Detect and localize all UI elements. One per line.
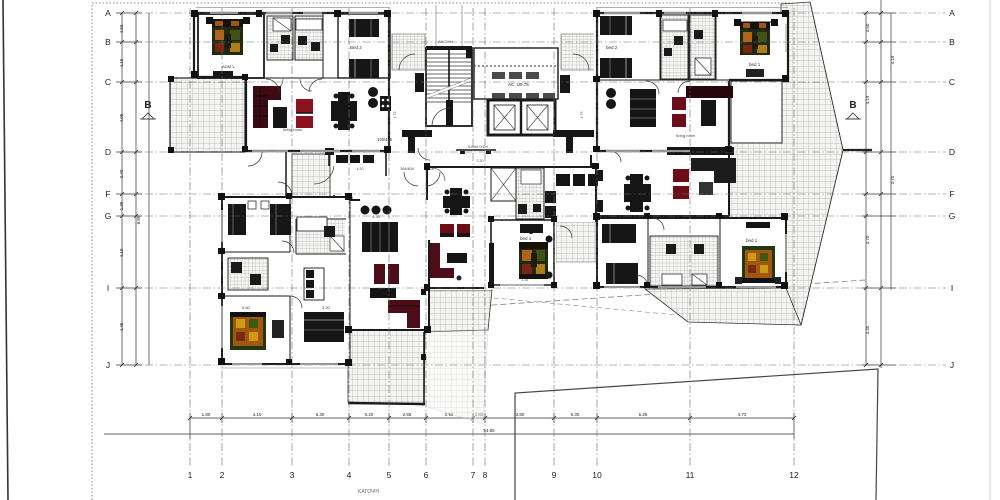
svg-text:F: F <box>949 189 954 199</box>
svg-text:F: F <box>105 189 110 199</box>
svg-text:B: B <box>849 100 856 111</box>
svg-text:bed 1: bed 1 <box>520 236 532 241</box>
svg-text:6.30: 6.30 <box>316 412 325 417</box>
svg-text:4.50: 4.50 <box>119 24 124 33</box>
svg-text:1.30: 1.30 <box>119 201 124 210</box>
svg-text:2.55: 2.55 <box>403 412 412 417</box>
svg-text:2.40: 2.40 <box>119 169 124 178</box>
svg-text:4.50: 4.50 <box>865 23 870 32</box>
svg-text:1.80: 1.80 <box>202 412 211 417</box>
svg-text:J: J <box>106 360 110 370</box>
svg-text:4: 4 <box>347 470 352 480</box>
svg-text:4.05: 4.05 <box>119 113 124 122</box>
svg-text:2.30: 2.30 <box>477 159 484 163</box>
svg-text:2: 2 <box>220 470 225 480</box>
svg-text:3.20: 3.20 <box>322 305 331 310</box>
svg-text:bed 2: bed 2 <box>606 45 618 50</box>
svg-text:0.20: 0.20 <box>365 412 374 417</box>
svg-text:4.19: 4.19 <box>890 55 895 64</box>
svg-text:4.19: 4.19 <box>865 95 870 104</box>
svg-text:ΚΑΤΟΨΗ: ΚΑΤΟΨΗ <box>358 489 379 495</box>
svg-text:4.20: 4.20 <box>357 167 364 171</box>
svg-text:5.60: 5.60 <box>242 305 251 310</box>
svg-text:B: B <box>949 37 955 47</box>
svg-text:D: D <box>949 147 955 157</box>
svg-text:A: A <box>105 8 111 18</box>
svg-text:living room: living room <box>283 127 303 132</box>
svg-text:Bed 2: Bed 2 <box>350 45 362 50</box>
svg-text:4.45: 4.45 <box>119 322 124 331</box>
svg-text:105/405: 105/405 <box>377 137 393 142</box>
svg-text:3.15: 3.15 <box>521 278 528 282</box>
svg-text:10: 10 <box>592 470 602 480</box>
svg-text:3.75: 3.75 <box>890 175 895 184</box>
svg-text:6.30: 6.30 <box>571 412 580 417</box>
svg-text:bed 1: bed 1 <box>746 238 758 243</box>
svg-text:B: B <box>144 100 151 111</box>
svg-text:G: G <box>105 211 112 221</box>
svg-text:C: C <box>105 77 111 87</box>
svg-text:4.15: 4.15 <box>119 58 124 67</box>
svg-text:I: I <box>951 283 953 293</box>
svg-text:ΔΩΜ 1: ΔΩΜ 1 <box>222 64 235 69</box>
svg-text:4.10: 4.10 <box>119 248 124 257</box>
svg-text:4.70: 4.70 <box>865 235 870 244</box>
svg-text:3.80: 3.80 <box>516 412 525 417</box>
svg-text:I: I <box>107 283 109 293</box>
svg-text:D: D <box>105 147 111 157</box>
svg-text:ΚΛΙΜ./ΧΩΛ: ΚΛΙΜ./ΧΩΛ <box>468 144 489 149</box>
svg-text:4.35: 4.35 <box>372 214 381 219</box>
svg-text:4.10: 4.10 <box>253 412 262 417</box>
svg-text:104/404: 104/404 <box>400 167 414 171</box>
svg-text:6: 6 <box>424 470 429 480</box>
svg-text:9: 9 <box>552 470 557 480</box>
svg-text:AC. U9,75: AC. U9,75 <box>508 82 529 87</box>
svg-text:4.73: 4.73 <box>738 412 747 417</box>
svg-text:B: B <box>105 37 111 47</box>
svg-text:A: A <box>949 8 955 18</box>
svg-text:living room: living room <box>676 133 696 138</box>
svg-text:8: 8 <box>483 470 488 480</box>
svg-text:4.75: 4.75 <box>580 112 584 119</box>
svg-text:3: 3 <box>290 470 295 480</box>
svg-text:4.75: 4.75 <box>393 112 397 119</box>
svg-text:J: J <box>950 360 954 370</box>
svg-text:8.85: 8.85 <box>136 215 141 224</box>
svg-text:C: C <box>949 77 955 87</box>
svg-text:4.45: 4.45 <box>865 325 870 334</box>
svg-text:12: 12 <box>789 470 799 480</box>
svg-text:1: 1 <box>188 470 193 480</box>
svg-text:bed 1: bed 1 <box>749 62 761 67</box>
svg-text:7: 7 <box>471 470 476 480</box>
svg-text:5: 5 <box>387 470 392 480</box>
svg-text:11: 11 <box>686 470 695 480</box>
svg-text:G: G <box>949 211 956 221</box>
svg-text:ΑΝΟΨΗ: ΑΝΟΨΗ <box>438 39 453 44</box>
svg-text:5.25: 5.25 <box>639 412 648 417</box>
